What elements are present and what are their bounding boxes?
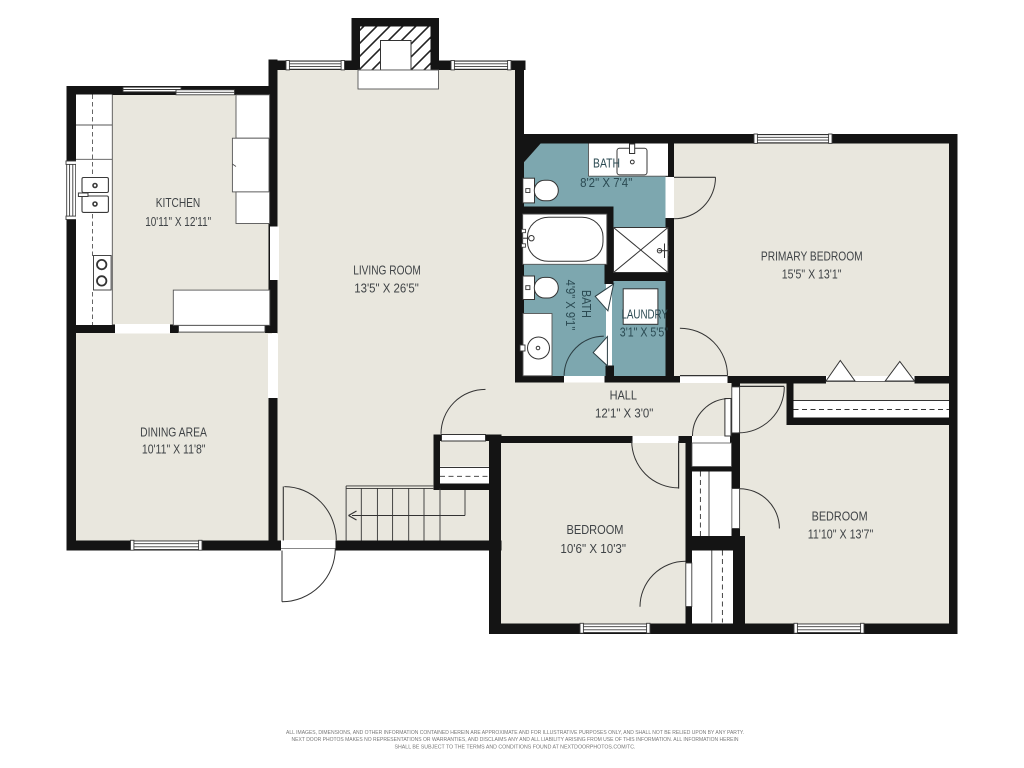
svg-text:PRIMARY BEDROOM: PRIMARY BEDROOM [761, 248, 863, 263]
svg-text:13'5" X 26'5": 13'5" X 26'5" [354, 280, 419, 295]
svg-text:LAUNDRY: LAUNDRY [621, 307, 668, 322]
svg-text:11'10" X 13'7": 11'10" X 13'7" [808, 527, 874, 542]
svg-text:LIVING ROOM: LIVING ROOM [353, 262, 421, 277]
svg-text:SHALL BE SUBJECT TO THE TERMS: SHALL BE SUBJECT TO THE TERMS AND CONDIT… [395, 745, 636, 751]
svg-text:KITCHEN: KITCHEN [156, 195, 201, 210]
svg-text:HALL: HALL [610, 387, 637, 402]
svg-text:BATH: BATH [579, 290, 594, 318]
svg-text:BEDROOM: BEDROOM [567, 522, 624, 537]
svg-text:BEDROOM: BEDROOM [812, 508, 868, 523]
svg-text:12'1" X 3'0": 12'1" X 3'0" [595, 405, 654, 420]
svg-text:15'5" X 13'1": 15'5" X 13'1" [782, 266, 842, 281]
svg-text:4'9" X 9'1": 4'9" X 9'1" [563, 280, 578, 331]
svg-text:10'11" X 11'8": 10'11" X 11'8" [142, 441, 206, 456]
svg-text:8'2" X 7'4": 8'2" X 7'4" [580, 175, 633, 190]
svg-text:10'6" X 10'3": 10'6" X 10'3" [560, 541, 626, 556]
svg-text:DINING AREA: DINING AREA [140, 425, 207, 440]
svg-text:NEXT DOOR PHOTOS MAKES NO REPR: NEXT DOOR PHOTOS MAKES NO REPRESENTATION… [292, 737, 739, 743]
svg-text:3'1" X 5'5": 3'1" X 5'5" [620, 324, 669, 339]
svg-text:ALL IMAGES, DIMENSIONS, AND OT: ALL IMAGES, DIMENSIONS, AND OTHER INFORM… [286, 730, 744, 736]
svg-text:BATH: BATH [593, 156, 620, 171]
svg-text:10'11" X 12'11": 10'11" X 12'11" [145, 214, 211, 229]
